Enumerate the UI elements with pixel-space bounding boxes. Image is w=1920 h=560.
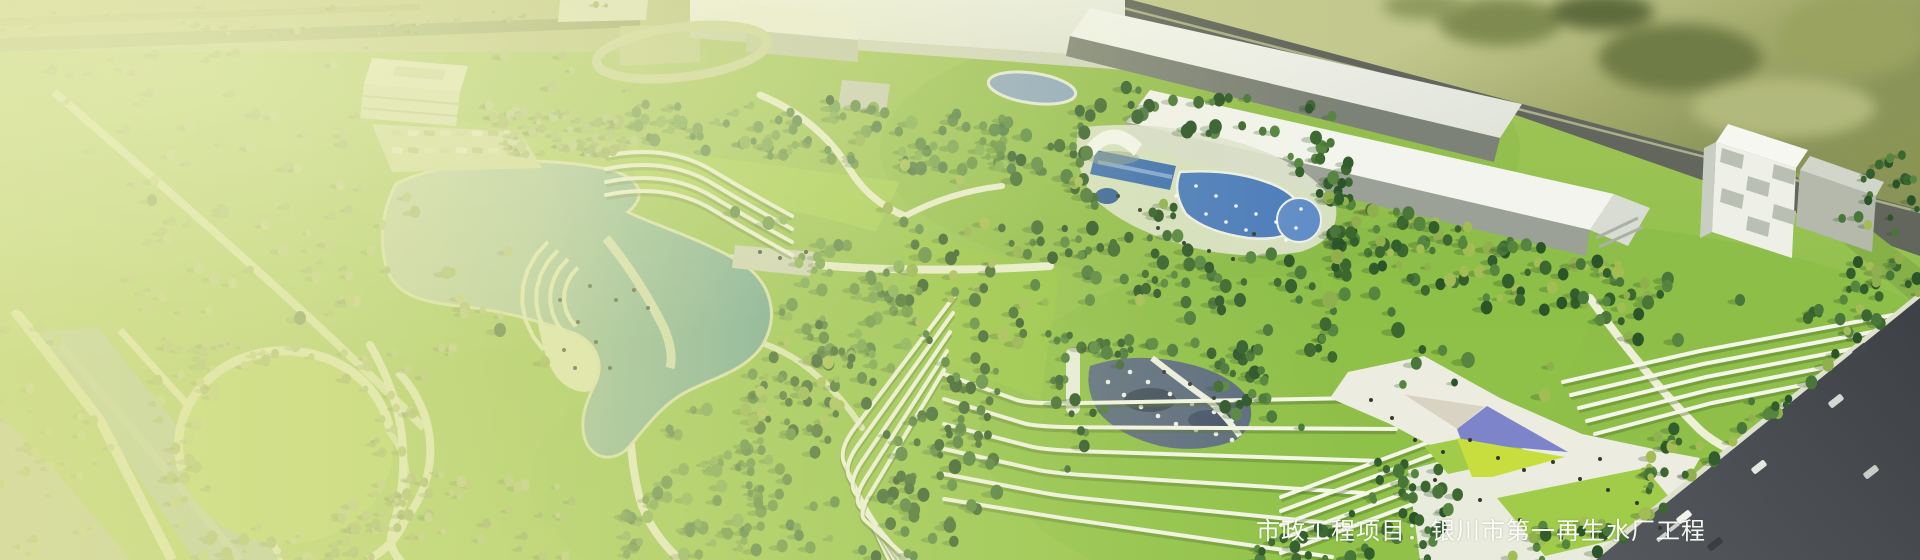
project-caption: 市政工程项目：银川市第一再生水厂工程 — [1256, 519, 1706, 549]
haze-overlay — [0, 0, 1920, 560]
aerial-site-rendering — [0, 0, 1920, 560]
project-banner: 市政工程项目：银川市第一再生水厂工程 — [0, 0, 1920, 560]
